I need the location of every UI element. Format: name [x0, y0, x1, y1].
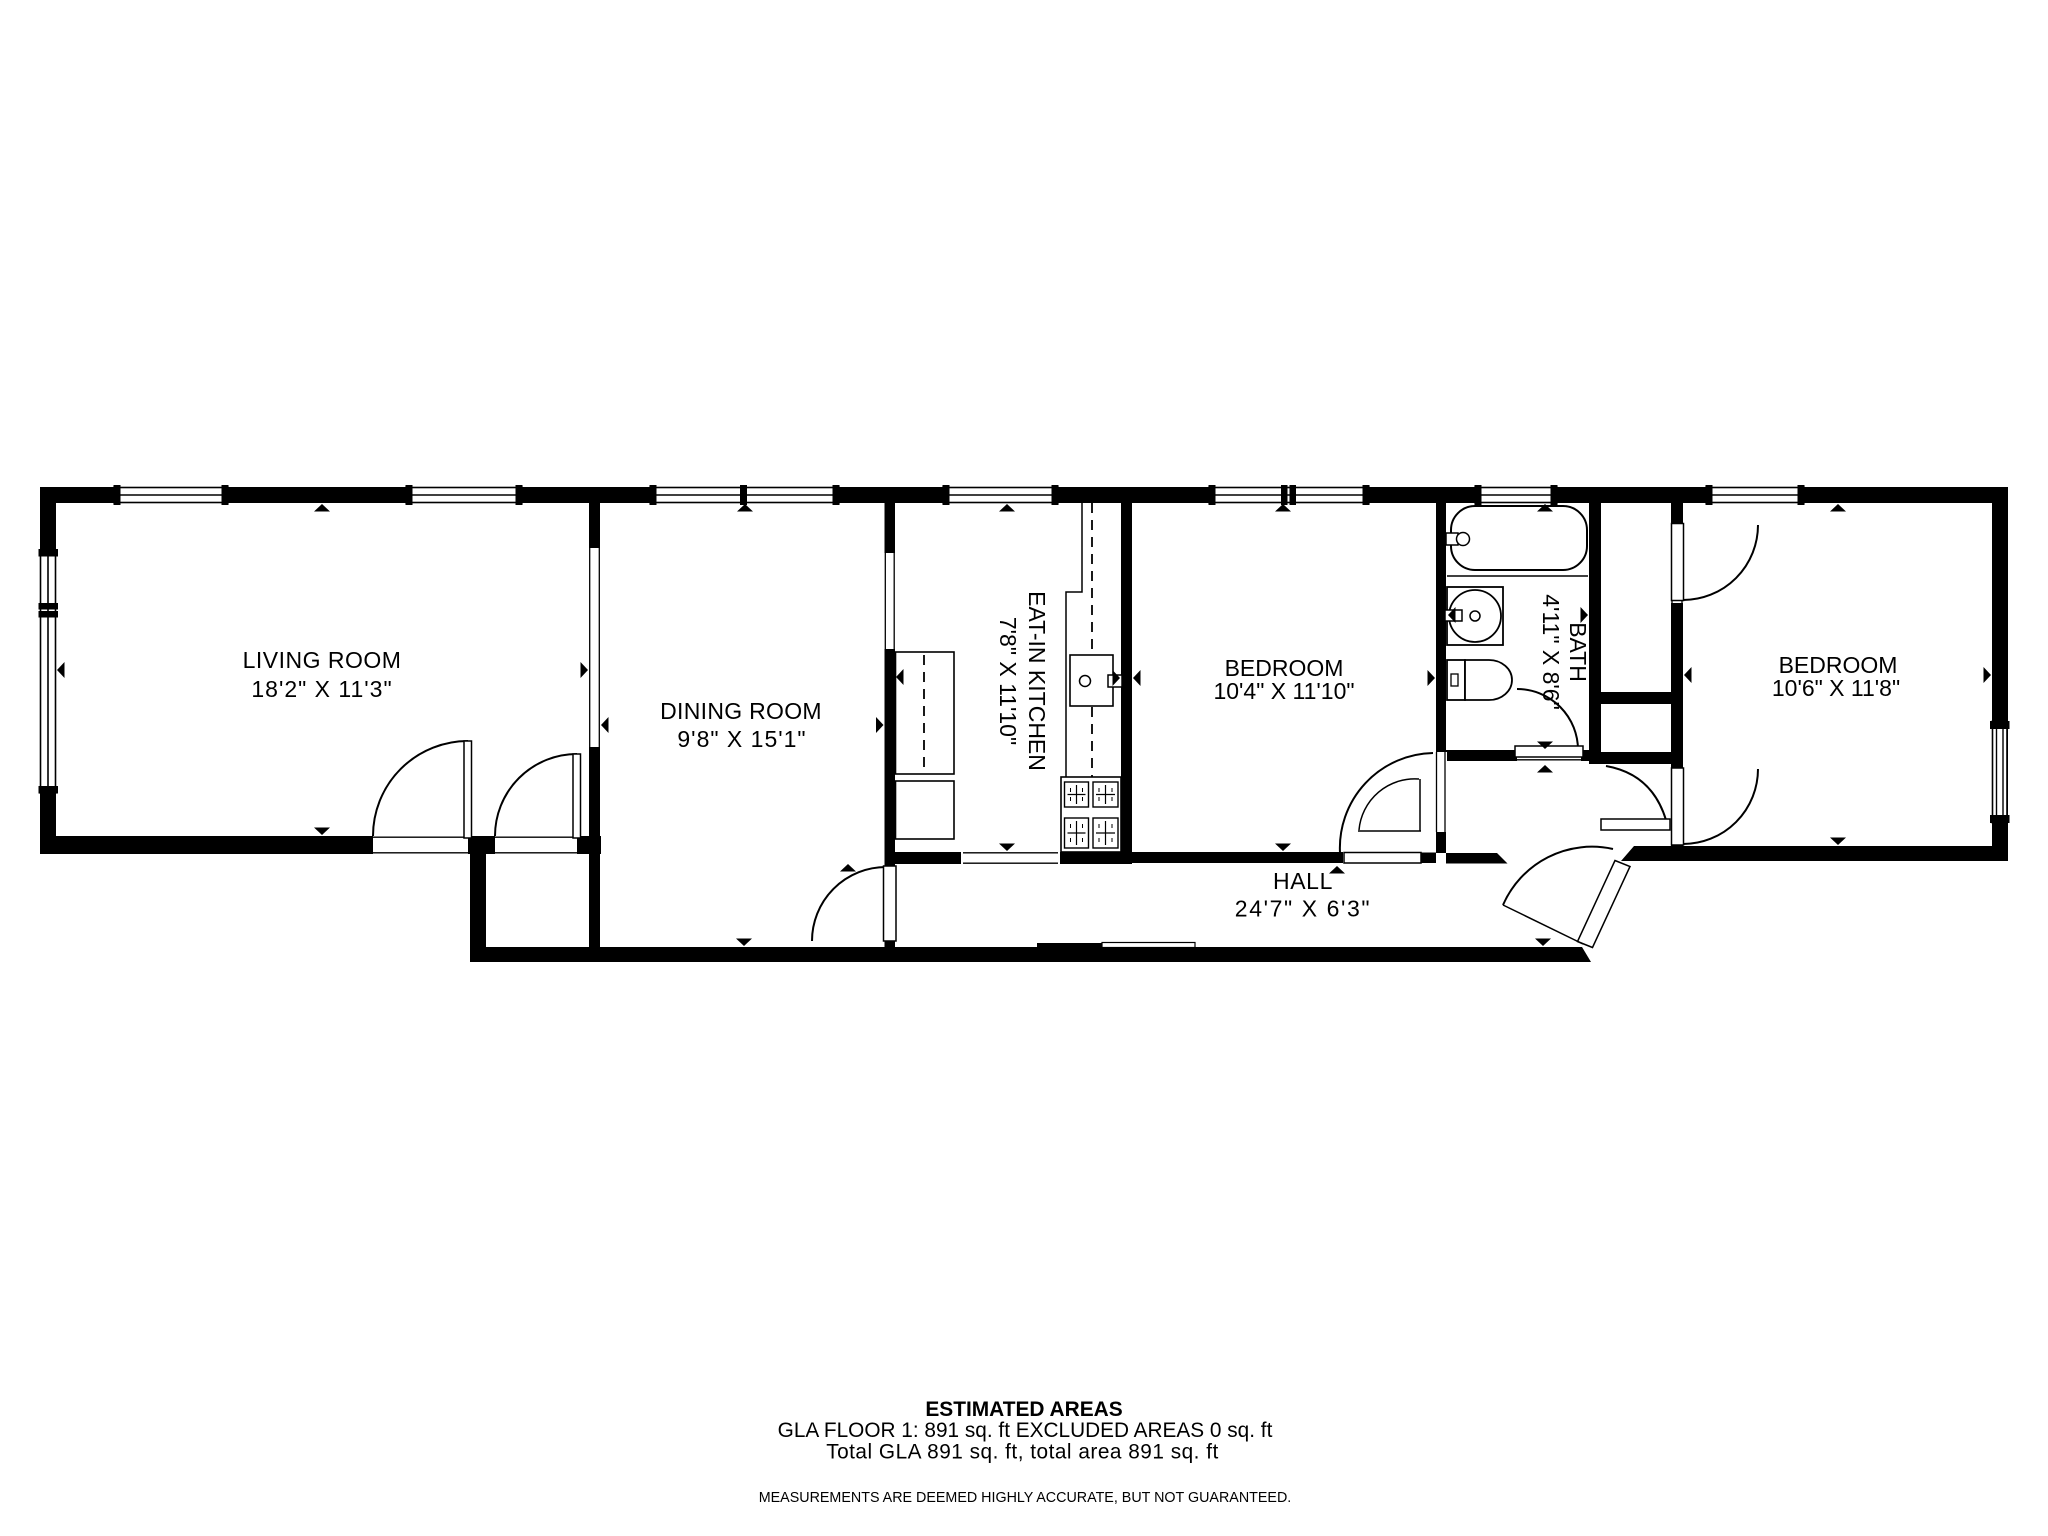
svg-text:4'11" X 8'6": 4'11" X 8'6"	[1538, 594, 1564, 709]
svg-text:18'2" X 11'3": 18'2" X 11'3"	[251, 676, 392, 702]
svg-text:HALL: HALL	[1273, 868, 1333, 894]
svg-text:10'4" X 11'10": 10'4" X 11'10"	[1213, 678, 1354, 704]
svg-text:Total GLA 891 sq. ft, total ar: Total GLA 891 sq. ft, total area 891 sq.…	[826, 1441, 1219, 1464]
svg-text:BATH: BATH	[1565, 622, 1591, 682]
svg-text:MEASUREMENTS ARE DEEMED HIGHLY: MEASUREMENTS ARE DEEMED HIGHLY ACCURATE,…	[759, 1490, 1292, 1506]
svg-text:7'8" X 11'10": 7'8" X 11'10"	[995, 617, 1021, 745]
svg-text:EAT-IN KITCHEN: EAT-IN KITCHEN	[1024, 591, 1050, 771]
svg-text:DINING ROOM: DINING ROOM	[660, 698, 822, 724]
svg-text:GLA FLOOR 1: 891 sq. ft EXCLUD: GLA FLOOR 1: 891 sq. ft EXCLUDED AREAS 0…	[778, 1419, 1273, 1442]
svg-text:ESTIMATED AREAS: ESTIMATED AREAS	[925, 1398, 1122, 1421]
svg-text:10'6" X 11'8": 10'6" X 11'8"	[1772, 675, 1900, 701]
svg-text:LIVING ROOM: LIVING ROOM	[243, 647, 402, 673]
svg-text:9'8" X 15'1": 9'8" X 15'1"	[677, 726, 806, 752]
svg-text:24'7" X 6'3": 24'7" X 6'3"	[1235, 896, 1371, 922]
